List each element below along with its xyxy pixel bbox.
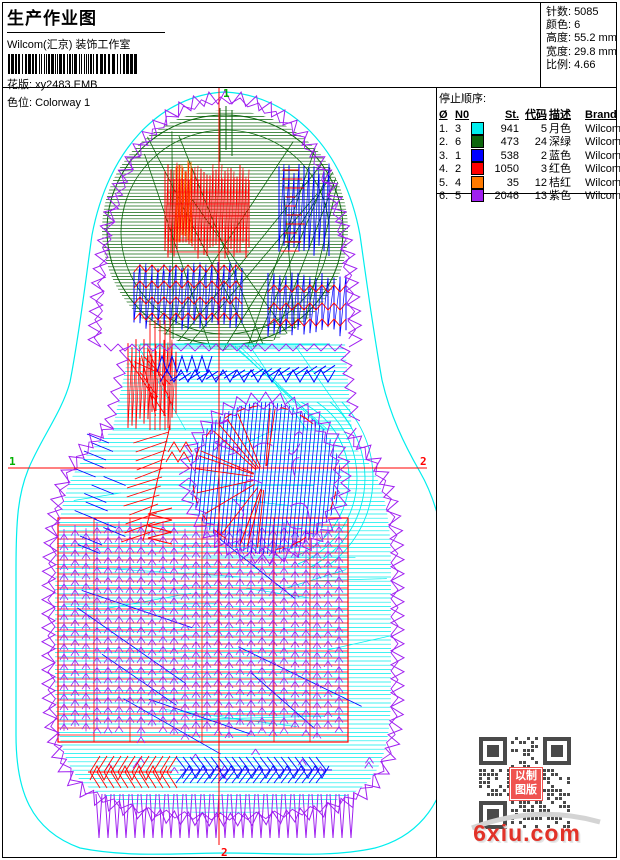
thread-color-swatch	[471, 162, 484, 175]
thread-row: 3. 1 538 2 蓝色 Wilcom	[439, 149, 615, 162]
thread-brand: Wilcom	[585, 123, 620, 136]
needle-number: 3	[455, 123, 471, 136]
needle-number: 5	[455, 190, 471, 203]
thread-desc: 紫色	[549, 190, 585, 203]
stop-number: 5.	[439, 177, 455, 190]
thread-brand: Wilcom	[585, 136, 620, 149]
thread-row: 1. 3 941 5 月色 Wilcom	[439, 122, 615, 135]
studio-name: Wilcom(汇京) 装饰工作室	[7, 36, 427, 52]
svg-text:2: 2	[221, 846, 228, 858]
stat-line: 高度:55.2 mm	[546, 32, 614, 45]
stop-number: 3.	[439, 150, 455, 163]
stitch-count: 941	[489, 123, 521, 136]
svg-text:2: 2	[420, 455, 427, 468]
stitch-count: 1050	[489, 163, 521, 176]
stitch-count: 35	[489, 177, 521, 190]
thread-row: 5. 4 35 12 桔红 Wilcom	[439, 176, 615, 189]
table-header-row: ØN0St.代码描述Brand元素	[439, 108, 615, 122]
stat-line: 针数:5085	[546, 6, 614, 19]
stitch-plot: 1122	[3, 88, 436, 858]
thread-brand: Wilcom	[585, 150, 620, 163]
stop-number: 4.	[439, 163, 455, 176]
stop-sequence-title: 停止顺序:	[439, 90, 615, 106]
needle-number: 1	[455, 150, 471, 163]
svg-text:1: 1	[223, 88, 230, 100]
design-stats: 针数:5085 颜色:6 高度:55.2 mm 宽度:29.8 mm 比例:4.…	[546, 6, 614, 72]
needle-number: 6	[455, 136, 471, 149]
thread-row: 4. 2 1050 3 红色 Wilcom	[439, 162, 615, 175]
thread-brand: Wilcom	[585, 163, 620, 176]
stitch-count: 538	[489, 150, 521, 163]
site-logo: 6xiu.com	[437, 820, 617, 847]
thread-row: 6. 5 2046 13 紫色 Wilcom	[439, 189, 615, 202]
page-title: 生产作业图	[7, 4, 165, 33]
needle-number: 2	[455, 163, 471, 176]
thread-color-swatch	[471, 135, 484, 148]
barcode	[7, 54, 142, 74]
needle-number: 4	[455, 177, 471, 190]
thread-code: 3	[521, 163, 549, 176]
stat-line: 比例:4.66	[546, 59, 614, 72]
thread-code: 24	[521, 136, 549, 149]
thread-code: 5	[521, 123, 549, 136]
thread-brand: Wilcom	[585, 190, 620, 203]
stat-line: 颜色:6	[546, 19, 614, 32]
stop-number: 6.	[439, 190, 455, 203]
thread-color-swatch	[471, 149, 484, 162]
thread-brand: Wilcom	[585, 177, 620, 190]
stop-number: 1.	[439, 123, 455, 136]
thread-desc: 月色	[549, 123, 585, 136]
thread-desc: 红色	[549, 163, 585, 176]
thread-color-swatch	[471, 122, 484, 135]
svg-text:1: 1	[9, 455, 16, 468]
thread-desc: 桔红	[549, 177, 585, 190]
thread-code: 2	[521, 150, 549, 163]
qr-center-stamp: 以制 图版	[510, 768, 542, 800]
stitch-count: 2046	[489, 190, 521, 203]
stat-line: 宽度:29.8 mm	[546, 46, 614, 59]
thread-desc: 蓝色	[549, 150, 585, 163]
thread-code: 12	[521, 177, 549, 190]
thread-color-swatch	[471, 189, 484, 202]
stop-sequence-table: 停止顺序: ØN0St.代码描述Brand元素 1. 3 941 5 月色 Wi…	[439, 90, 615, 202]
stitch-count: 473	[489, 136, 521, 149]
thread-color-swatch	[471, 176, 484, 189]
thread-desc: 深绿	[549, 136, 585, 149]
stop-number: 2.	[439, 136, 455, 149]
thread-row: 2. 6 473 24 深绿 Wilcom	[439, 135, 615, 148]
right-column-divider	[436, 88, 437, 857]
header-divider	[540, 3, 541, 87]
table-body: 1. 3 941 5 月色 Wilcom 2. 6 473 24 深绿 Wilc…	[439, 122, 615, 202]
thread-code: 13	[521, 190, 549, 203]
